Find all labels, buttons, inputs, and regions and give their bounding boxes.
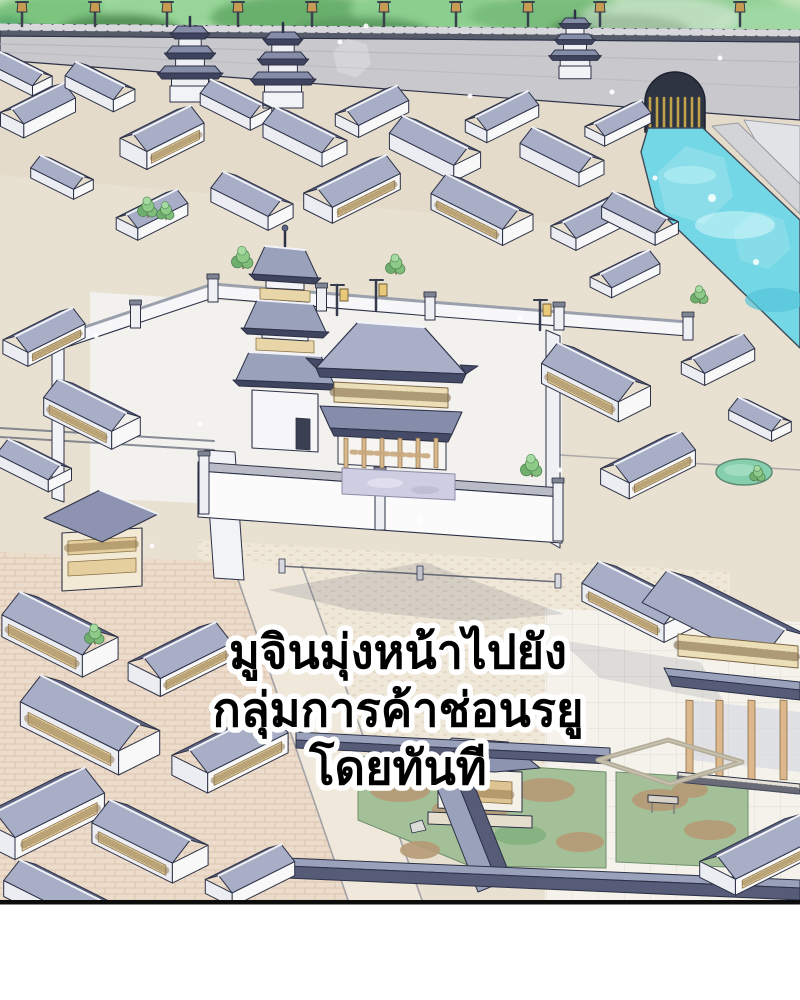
city-illustration: มูจินมุ่งหน้าไปยัง กลุ่มการค้าช่อนรยู โด…	[0, 0, 800, 1000]
panel-bottom-border	[0, 900, 800, 905]
caption-line-2: กลุ่มการค้าช่อนรยู	[212, 683, 583, 740]
caption-line-1: มูจินมุ่งหน้าไปยัง	[229, 624, 567, 682]
caption-line-3: โดยทันที	[308, 740, 486, 794]
page-gutter	[0, 905, 800, 1000]
webtoon-panel: มูจินมุ่งหน้าไปยัง กลุ่มการค้าช่อนรยู โด…	[0, 0, 800, 1000]
